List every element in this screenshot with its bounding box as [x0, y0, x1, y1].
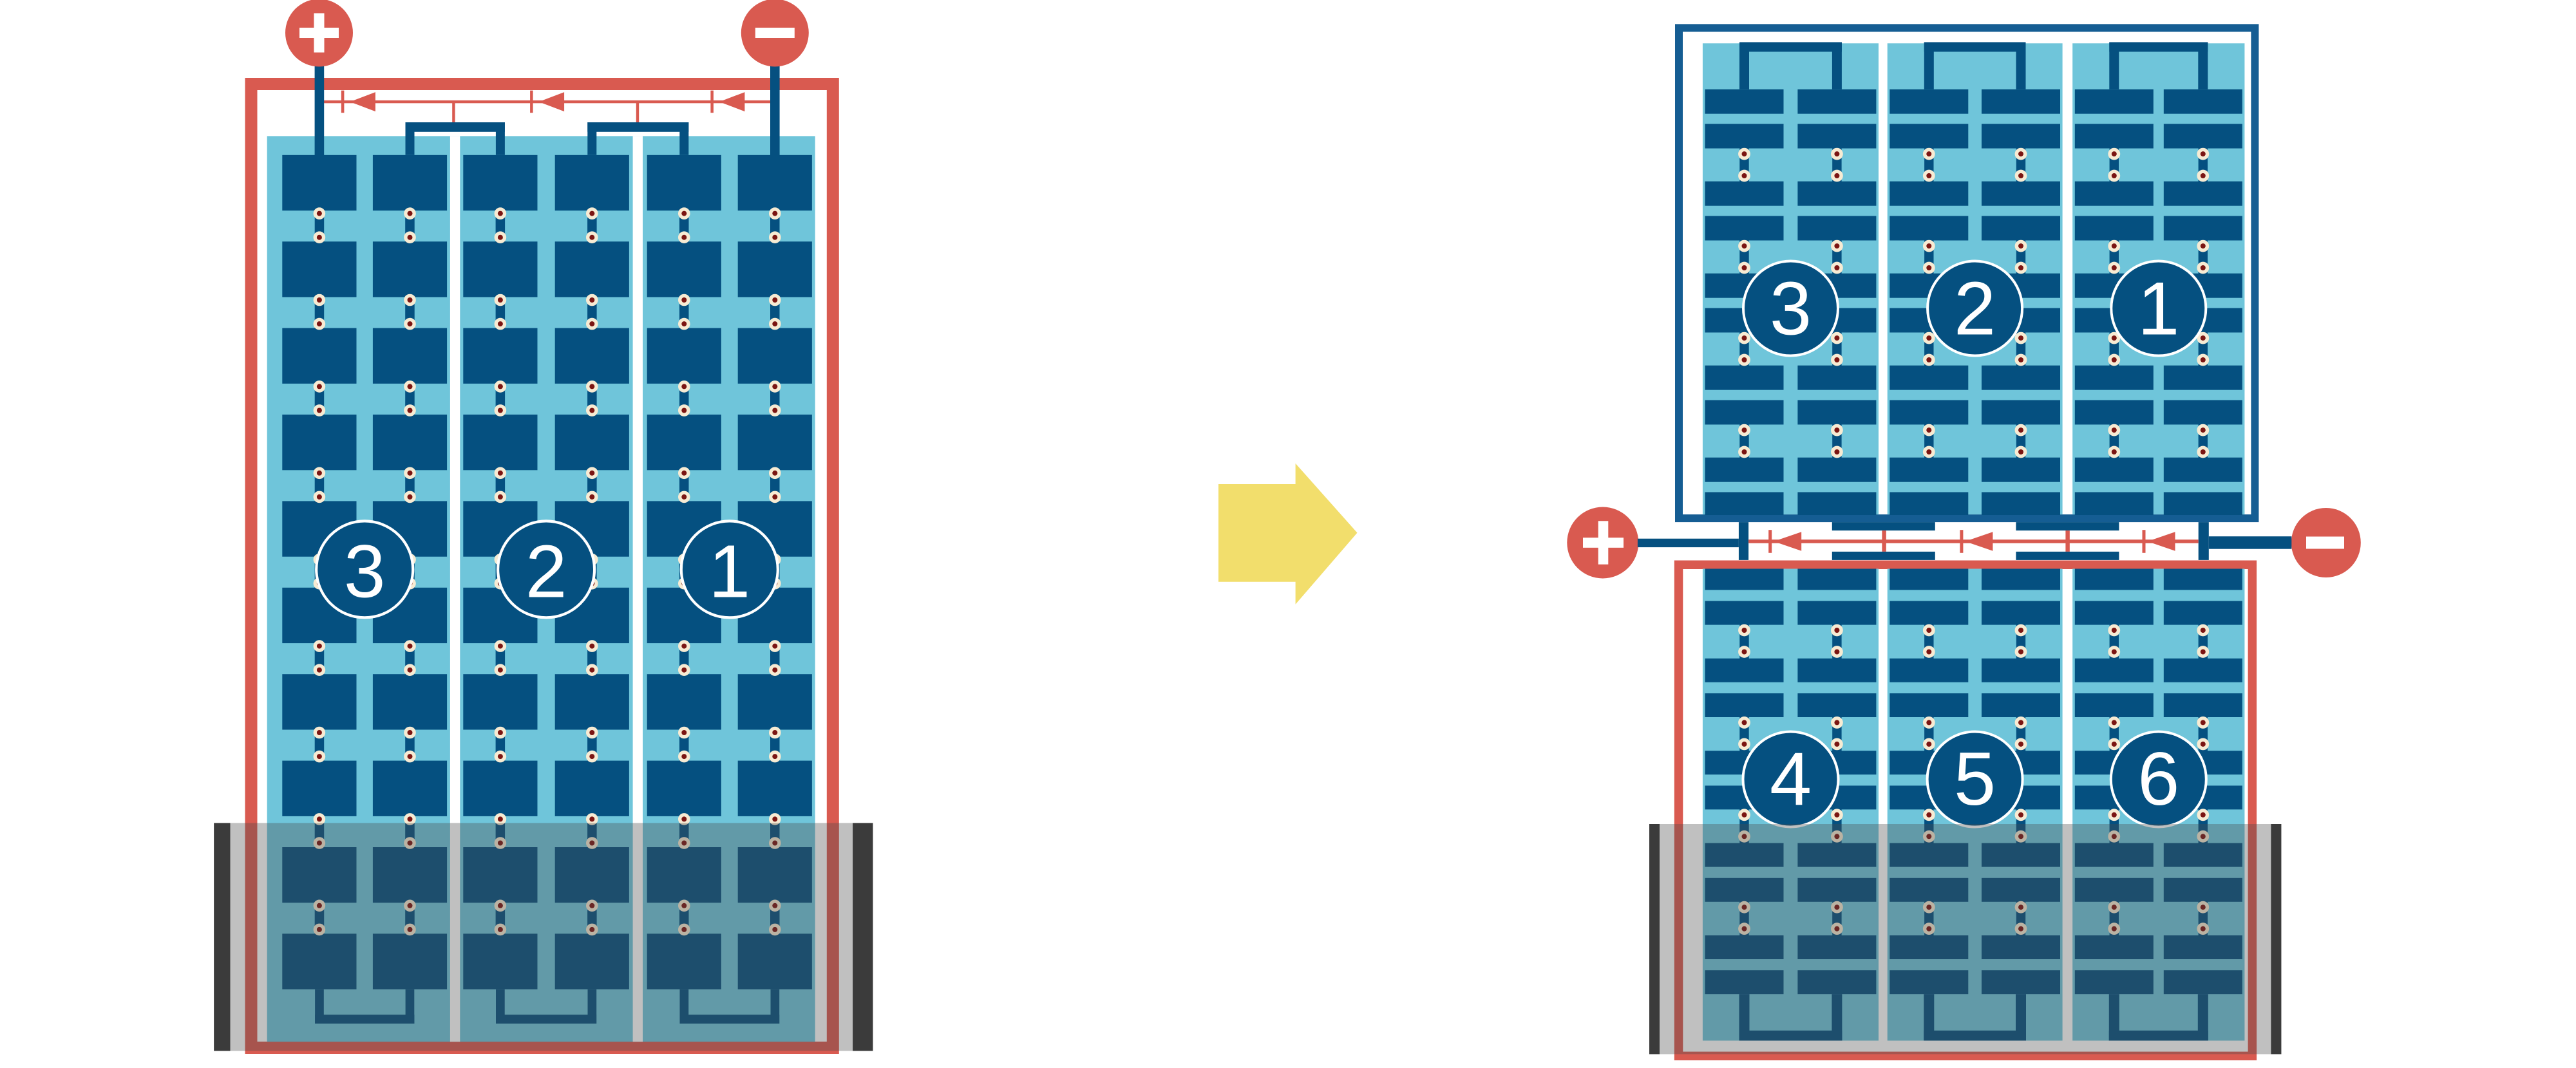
- svg-text:3: 3: [344, 530, 386, 614]
- svg-text:4: 4: [1770, 736, 1812, 821]
- svg-text:2: 2: [1954, 267, 1996, 351]
- svg-text:2: 2: [526, 530, 567, 614]
- svg-text:1: 1: [2137, 267, 2179, 351]
- svg-text:1: 1: [709, 530, 751, 614]
- svg-text:5: 5: [1954, 736, 1996, 821]
- svg-text:6: 6: [2137, 736, 2179, 821]
- svg-text:3: 3: [1770, 267, 1812, 351]
